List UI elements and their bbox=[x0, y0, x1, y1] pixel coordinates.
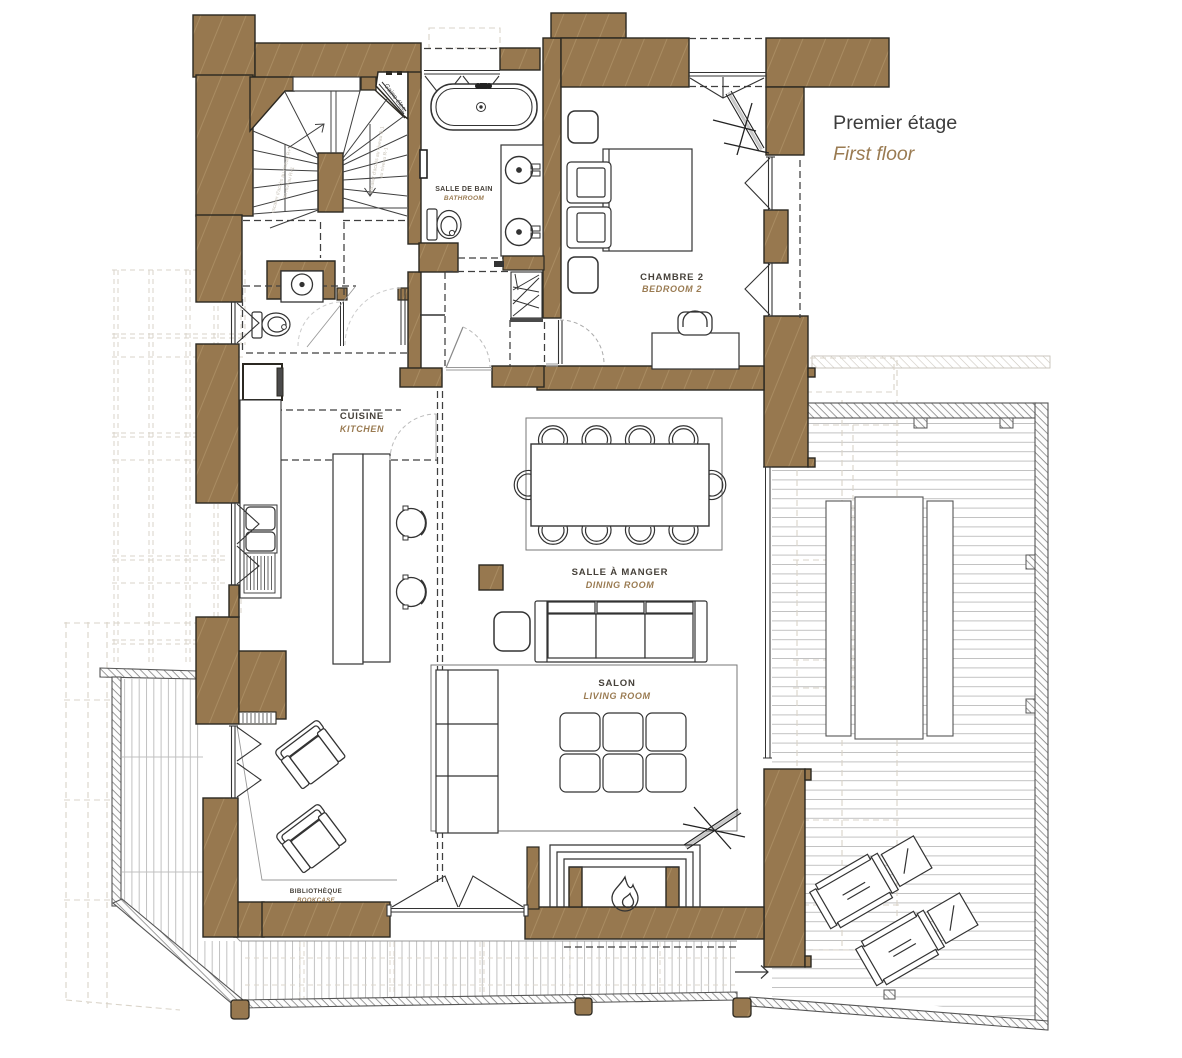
svg-text:BATHROOM: BATHROOM bbox=[444, 195, 484, 202]
svg-text:CUISINE: CUISINE bbox=[340, 411, 384, 422]
svg-text:CHAMBRE 2: CHAMBRE 2 bbox=[640, 272, 704, 283]
svg-text:DINING ROOM: DINING ROOM bbox=[586, 580, 655, 590]
svg-text:First floor: First floor bbox=[833, 143, 916, 165]
svg-text:BEDROOM 2: BEDROOM 2 bbox=[642, 284, 702, 294]
svg-text:SALON: SALON bbox=[598, 678, 635, 689]
svg-text:SALLE À MANGER: SALLE À MANGER bbox=[572, 567, 669, 578]
svg-text:Premier étage: Premier étage bbox=[833, 112, 957, 134]
svg-text:BIBLIOTHÈQUE: BIBLIOTHÈQUE bbox=[290, 886, 342, 895]
svg-text:KITCHEN: KITCHEN bbox=[340, 424, 384, 434]
svg-text:SALLE DE BAIN: SALLE DE BAIN bbox=[435, 186, 493, 193]
svg-text:BOOKCASE: BOOKCASE bbox=[297, 898, 335, 904]
svg-text:LIVING ROOM: LIVING ROOM bbox=[583, 691, 650, 701]
